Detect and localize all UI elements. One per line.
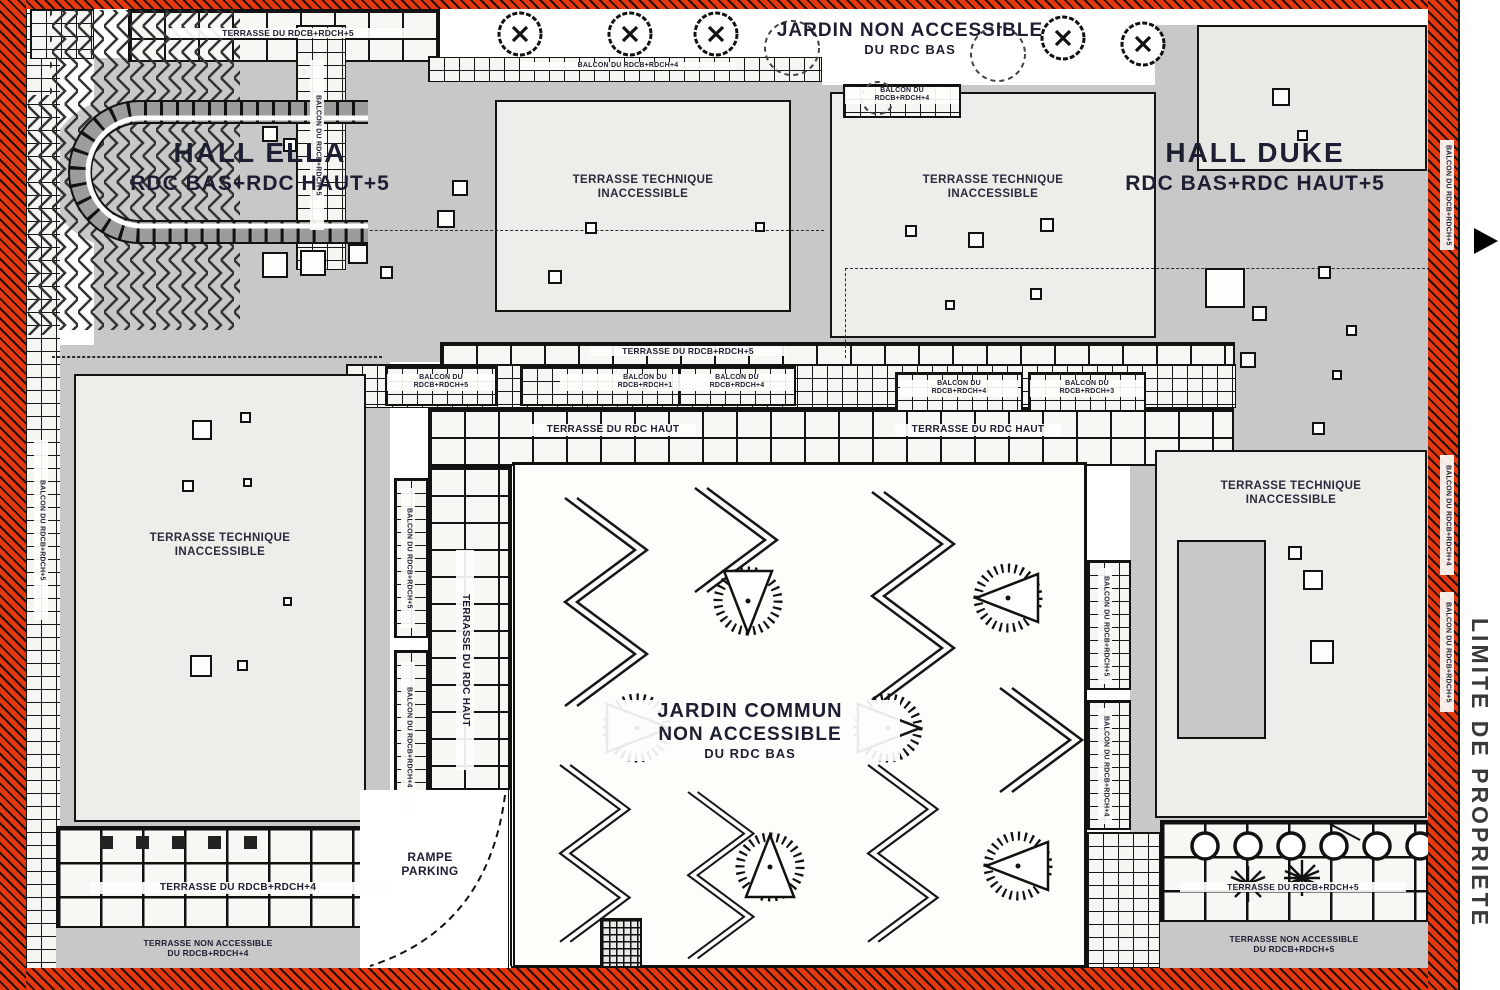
right-edge-balcony-label-3: BALCON DU RDCB+RDCH+5 (1440, 592, 1454, 712)
right-edge-balcony-label-2: BALCON DU RDCB+RDCH+4 (1440, 455, 1454, 575)
footprint-dashed-line (52, 356, 382, 358)
terrace-strip-top-left-label: TERRASSE DU RDCB+RDCH+5 (170, 28, 406, 38)
vent-square (190, 655, 212, 677)
balcony-strip-top-label: BALCON DU RDCB+RDCH+4 (520, 62, 736, 70)
vent-square (1205, 268, 1245, 308)
vent-square (348, 244, 368, 264)
terrace-bottom-left-label: TERRASSE DU RDCB+RDCH+4 (90, 882, 386, 894)
vent-square (1332, 370, 1342, 380)
architectural-floor-plan: TERRASSE DU RDCB+RDCH+5 BALCON DU RDCB+R… (0, 0, 1500, 990)
vent-square (182, 480, 194, 492)
property-line-top (26, 0, 1458, 9)
vent-square (905, 225, 917, 237)
hall-ella-name: HALL ELLA (120, 136, 400, 169)
vent-square (243, 478, 252, 487)
terrace-bottom-right-label: TERRASSE DU RDCB+RDCH+5 (1180, 882, 1406, 892)
footprint-dashed-line (104, 230, 824, 358)
hall-duke-levels: RDC BAS+RDC HAUT+5 (1090, 172, 1420, 197)
balcony-column-right-a-label: BALCON DU RDCB+RDCH+5 (1098, 568, 1112, 684)
technical-terrace-1-label: TERRASSE TECHNIQUE INACCESSIBLE (505, 174, 781, 201)
terrace-rdc-haut (428, 408, 1234, 466)
vent-square (968, 232, 984, 248)
balcony-box-1-label: BALCON DU RDCB+RDCH+5 (387, 374, 495, 391)
vent-square (548, 270, 562, 284)
vent-square (945, 300, 955, 310)
garden-west-wall (510, 466, 515, 966)
vent-square (1040, 218, 1054, 232)
terrace-rdc-haut-label-1: TERRASSE DU RDC HAUT (530, 424, 696, 436)
vent-square (1303, 570, 1323, 590)
vent-square (1272, 88, 1290, 106)
central-garden-label: JARDIN COMMUN NON ACCESSIBLE DU RDC BAS (600, 700, 900, 761)
bottom-right-band-label: TERRASSE NON ACCESSIBLE DU RDCB+RDCH+5 (1170, 934, 1418, 954)
vent-square (1318, 266, 1331, 279)
balcony-column-left-b-label: BALCON DU RDCB+RDCH+4 (401, 662, 415, 812)
terrace-rdc-haut-column-label: TERRASSE DU RDC HAUT (456, 550, 474, 770)
vent-square (1288, 546, 1302, 560)
vent-square (380, 266, 393, 279)
terrace-rdc-haut-label-2: TERRASSE DU RDC HAUT (895, 424, 1061, 436)
property-line-left (0, 0, 26, 990)
north-arrow-icon (1474, 228, 1498, 254)
vent-square (585, 222, 597, 234)
footprint-dashed-line (845, 268, 1430, 358)
vent-square (452, 180, 468, 196)
vent-square (1346, 325, 1357, 336)
right-edge-balcony-label-1: BALCON DU RDCB+RDCH+5 (1440, 140, 1454, 250)
top-garden-label: JARDIN NON ACCESSIBLE DU RDC BAS (770, 20, 1050, 58)
balcony-box-4-label: BALCON DU RDCB+RDCH+4 (900, 380, 1018, 397)
vent-square (1312, 422, 1325, 435)
technical-terrace-4-label: TERRASSE TECHNIQUE INACCESSIBLE (1165, 480, 1417, 507)
vent-square (437, 210, 455, 228)
vent-square (1240, 352, 1256, 368)
bottom-left-band-label: TERRASSE NON ACCESSIBLE DU RDCB+RDCH+4 (66, 938, 350, 958)
left-edge-balcony-label: BALCON DU RDCB+RDCH+5 (34, 440, 48, 620)
vent-square (755, 222, 765, 232)
vent-square (1252, 306, 1267, 321)
grid-below-right-columns (1087, 832, 1160, 968)
vent-square (1030, 288, 1042, 300)
balcony-box-top-center-label: BALCON DU RDCB+RDCH+4 (845, 87, 959, 104)
vent-square (283, 597, 292, 606)
garden-drain-grid (600, 918, 642, 968)
corner-grid-top-left (30, 9, 94, 59)
vent-square (237, 660, 248, 671)
parking-ramp-area (360, 790, 512, 968)
parking-ramp-label: RAMPE PARKING (370, 850, 490, 878)
balcony-column-left-a-label: BALCON DU RDCB+RDCH+5 (401, 488, 415, 628)
balcony-column-right-b-label: BALCON DU RDCB+RDCH+4 (1098, 708, 1112, 824)
terrace-strip-mid-label: TERRASSE DU RDCB+RDCH+5 (590, 346, 786, 356)
vent-square (1310, 640, 1334, 664)
balcony-box-5-label: BALCON DU RDCB+RDCH+3 (1030, 380, 1144, 397)
property-line-label: LIMITE DE PROPRIETE (1466, 618, 1493, 986)
vent-square (300, 250, 326, 276)
vent-square (192, 420, 212, 440)
hall-duke-name: HALL DUKE (1110, 136, 1400, 169)
vent-square (240, 412, 251, 423)
technical-terrace-3-label: TERRASSE TECHNIQUE INACCESSIBLE (84, 532, 356, 559)
hall-ella-levels: RDC BAS+RDC HAUT+5 (90, 172, 430, 197)
terrace-bottom-right (1160, 820, 1428, 922)
vent-square (262, 252, 288, 278)
technical-terrace-4-step (1177, 540, 1266, 739)
technical-terrace-3 (74, 374, 366, 822)
balcony-box-3-label: BALCON DU RDCB+RDCH+4 (680, 374, 794, 391)
property-line-bottom (26, 968, 1428, 990)
